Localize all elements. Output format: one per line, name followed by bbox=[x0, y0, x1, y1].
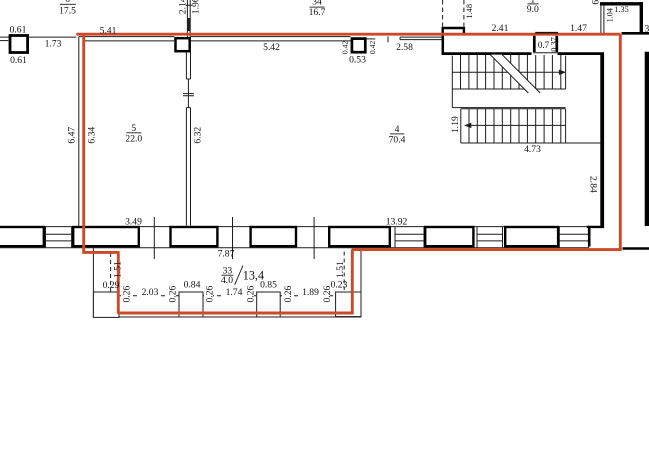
svg-text:0.7: 0.7 bbox=[538, 40, 550, 50]
svg-text:1.19: 1.19 bbox=[450, 116, 461, 133]
svg-text:2.84: 2.84 bbox=[588, 176, 599, 193]
svg-text:0.26: 0.26 bbox=[205, 286, 216, 303]
svg-text:5.42: 5.42 bbox=[263, 42, 280, 53]
svg-text:1.74: 1.74 bbox=[226, 287, 243, 298]
svg-text:1.96: 1.96 bbox=[190, 0, 201, 14]
svg-text:13.92: 13.92 bbox=[386, 217, 408, 228]
svg-text:1.35: 1.35 bbox=[614, 5, 628, 14]
svg-text:4.0: 4.0 bbox=[221, 275, 233, 286]
svg-text:0.42: 0.42 bbox=[341, 41, 350, 54]
svg-text:2.41: 2.41 bbox=[492, 23, 509, 34]
svg-text:4.73: 4.73 bbox=[524, 144, 541, 155]
svg-text:0.61: 0.61 bbox=[10, 25, 27, 36]
svg-text:70.4: 70.4 bbox=[389, 134, 406, 145]
svg-text:6.34: 6.34 bbox=[87, 127, 98, 144]
svg-text:5.41: 5.41 bbox=[100, 26, 117, 37]
svg-text:16.7: 16.7 bbox=[309, 7, 326, 18]
svg-text:1.51: 1.51 bbox=[113, 261, 124, 278]
svg-text:2.14: 2.14 bbox=[177, 0, 188, 14]
svg-text:1.89: 1.89 bbox=[302, 287, 319, 298]
svg-text:0.61: 0.61 bbox=[10, 55, 27, 66]
svg-text:2.03: 2.03 bbox=[142, 287, 159, 298]
svg-text:9.0: 9.0 bbox=[527, 4, 539, 15]
svg-text:0.26: 0.26 bbox=[246, 286, 257, 303]
svg-text:0.37: 0.37 bbox=[549, 37, 558, 52]
svg-text:6.47: 6.47 bbox=[67, 127, 78, 144]
svg-text:0.53: 0.53 bbox=[349, 55, 366, 66]
svg-text:0.84: 0.84 bbox=[184, 280, 201, 291]
svg-text:0.26: 0.26 bbox=[322, 286, 333, 303]
svg-text:17.5: 17.5 bbox=[59, 5, 76, 16]
svg-text:1.48: 1.48 bbox=[465, 4, 474, 19]
svg-text:6.: 6. bbox=[591, 0, 602, 5]
svg-text:1.51: 1.51 bbox=[335, 261, 346, 278]
svg-text:0.26: 0.26 bbox=[283, 286, 294, 303]
svg-text:22.0: 22.0 bbox=[125, 133, 142, 144]
svg-text:3.: 3. bbox=[645, 23, 649, 34]
svg-text:3.49: 3.49 bbox=[125, 216, 142, 227]
svg-text:0.85: 0.85 bbox=[260, 280, 277, 291]
svg-text:4: 4 bbox=[395, 124, 400, 135]
svg-text:1.47: 1.47 bbox=[570, 23, 587, 34]
svg-text:0.42: 0.42 bbox=[368, 41, 377, 54]
svg-text:0.29: 0.29 bbox=[103, 280, 120, 291]
svg-text:7.87: 7.87 bbox=[218, 248, 235, 259]
svg-text:1.04: 1.04 bbox=[606, 8, 615, 22]
svg-text:6.32: 6.32 bbox=[193, 127, 204, 144]
svg-text:0.26: 0.26 bbox=[167, 286, 178, 303]
svg-text:2.58: 2.58 bbox=[396, 42, 413, 53]
svg-text:1.73: 1.73 bbox=[45, 39, 62, 50]
svg-text:0.26: 0.26 bbox=[121, 286, 132, 303]
svg-text:0.23: 0.23 bbox=[331, 280, 348, 291]
